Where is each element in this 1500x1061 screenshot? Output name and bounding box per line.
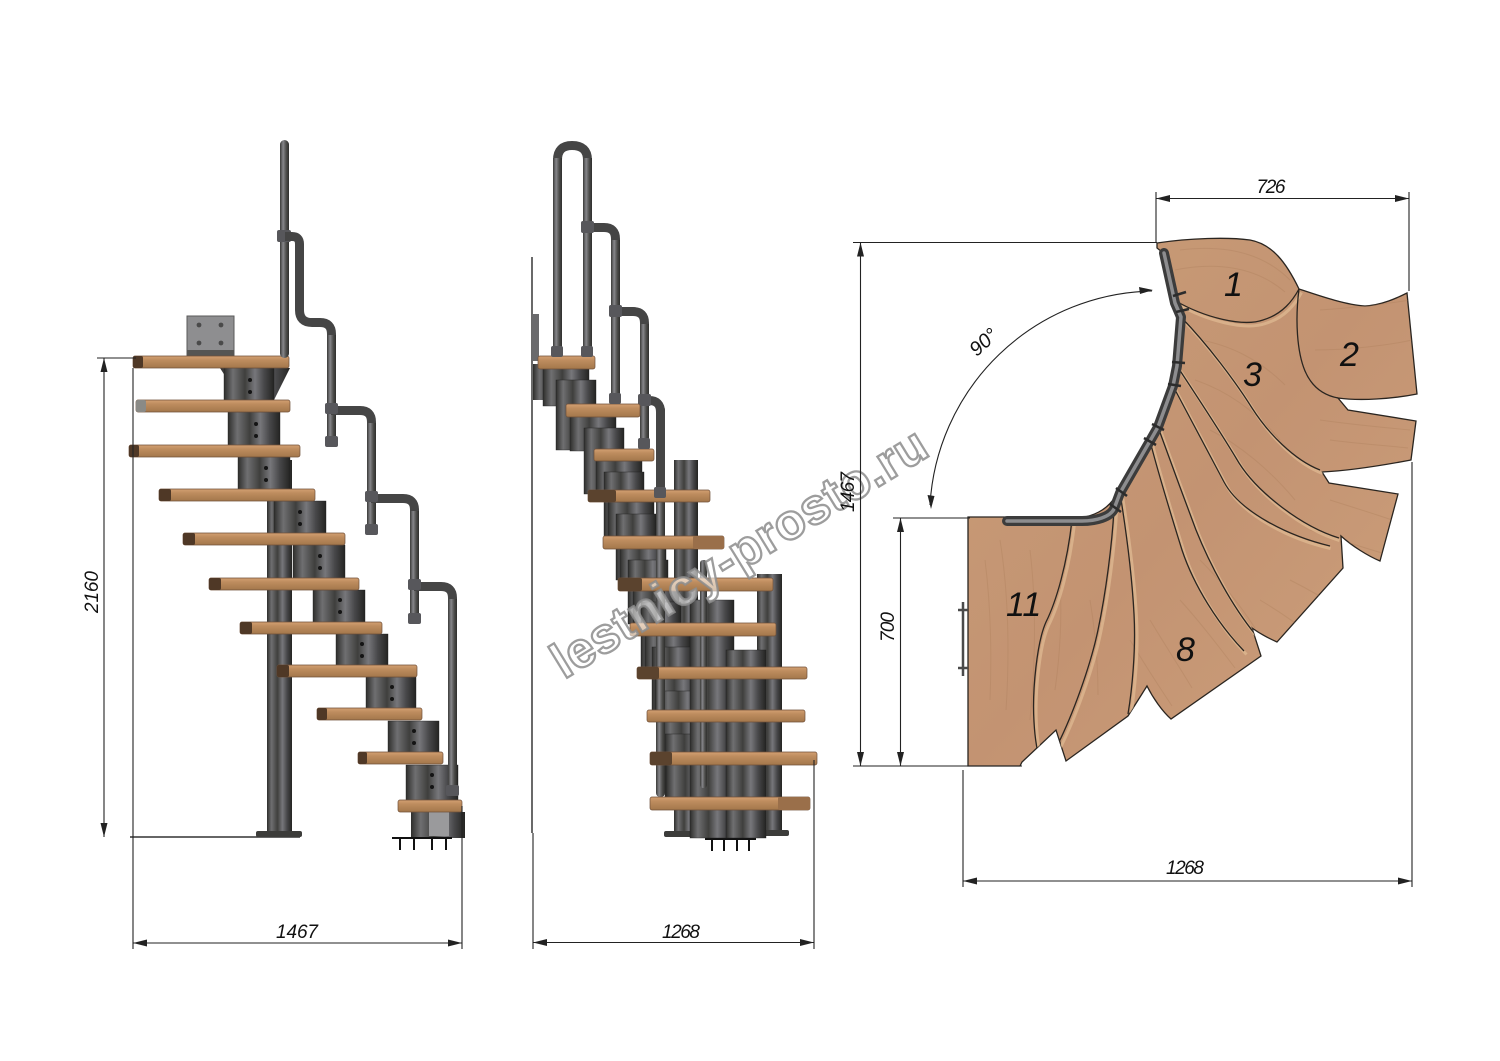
- svg-text:11: 11: [1006, 586, 1041, 624]
- svg-text:700: 700: [878, 612, 899, 642]
- svg-text:2: 2: [1339, 336, 1359, 374]
- svg-text:1467: 1467: [276, 922, 319, 943]
- svg-text:1: 1: [1224, 266, 1243, 304]
- svg-text:726: 726: [1257, 177, 1286, 198]
- svg-text:2160: 2160: [82, 571, 103, 614]
- svg-text:1467: 1467: [838, 471, 859, 512]
- svg-text:8: 8: [1176, 631, 1195, 669]
- svg-text:1268: 1268: [1166, 858, 1204, 879]
- svg-text:3: 3: [1243, 356, 1262, 394]
- svg-text:1268: 1268: [662, 922, 700, 943]
